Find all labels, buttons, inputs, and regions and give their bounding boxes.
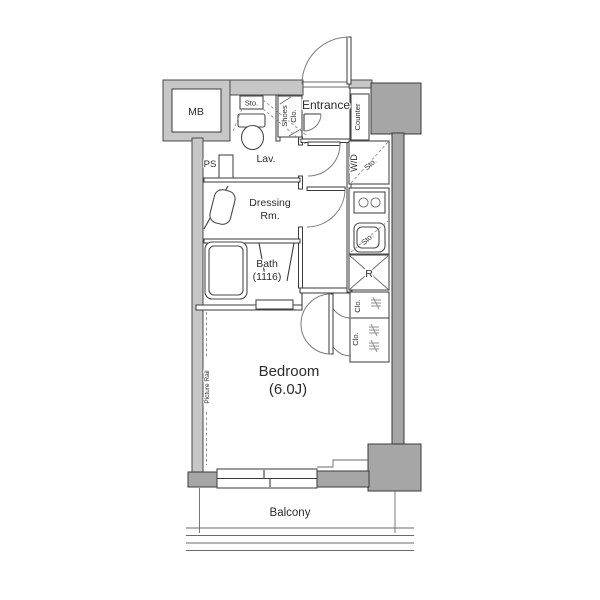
wall-hall-seg3 <box>299 227 303 288</box>
bathtub-inner <box>209 246 243 295</box>
dressing-door-swing-arc <box>307 189 345 227</box>
bath-door-line <box>287 243 294 281</box>
pillar-top-right <box>371 83 421 134</box>
wall-bottom-right-stub <box>317 471 369 487</box>
pipe-space-box <box>219 155 233 178</box>
lav-door-leaf <box>308 142 340 146</box>
front-door-swing-arc <box>302 37 349 84</box>
bath-label-2: (1116) <box>253 271 282 283</box>
balcony-label: Balcony <box>270 507 311 519</box>
bath-step <box>256 300 293 309</box>
meter-box-label: MB <box>188 106 204 118</box>
bedroom-label-2: (6.0J) <box>269 381 307 398</box>
wall-lav-dressing <box>204 178 300 182</box>
bedroom-label-1: Bedroom <box>259 363 320 380</box>
floor-plan-page: MB Sto. Shoes Clo. Entrance Counter PS L… <box>0 0 600 600</box>
bath-label-1: Bath <box>256 258 278 270</box>
shoes-closet-label-2: Clo. <box>289 109 298 123</box>
entrance-label: Entrance <box>302 98 350 112</box>
bedroom-door-swing-arc <box>301 294 331 354</box>
wall-hall-bedroom <box>300 288 352 293</box>
picture-rail-label: Picture Rail <box>204 370 211 404</box>
lav-door-swing-arc <box>308 144 340 176</box>
shoes-door-swing-arc <box>304 114 321 131</box>
toilet-storage-label: Sto. <box>245 99 259 108</box>
dressing-room-label-2: Rm. <box>260 210 279 222</box>
wall-top-left <box>230 80 303 95</box>
pillar-bottom-right <box>368 444 421 491</box>
lavatory-label: Lav. <box>256 153 275 165</box>
bedroom-door-leaf <box>329 294 333 354</box>
washer-dryer-label: W/D <box>349 154 359 172</box>
wall-right <box>392 133 404 445</box>
wall-top-right <box>349 80 372 88</box>
closet-upper-label: Clo. <box>353 299 362 313</box>
pipe-space-label: PS <box>204 159 217 170</box>
closet-lower-label: Clo. <box>351 332 360 346</box>
front-door-leaf <box>347 37 351 84</box>
toilet-bowl-icon <box>242 126 264 150</box>
washbasin-icon <box>208 188 237 226</box>
counter-label: Counter <box>353 103 362 130</box>
dressing-door-leaf <box>307 187 345 191</box>
floor-plan-drawing: MB Sto. Shoes Clo. Entrance Counter PS L… <box>0 0 600 600</box>
wall-bottom-left-stub <box>188 472 218 487</box>
shoes-closet-label-1: Shoes <box>280 105 289 127</box>
refrigerator-label: R <box>365 268 373 280</box>
wall-step-line <box>317 460 368 467</box>
dressing-room-label-1: Dressing <box>249 197 291 209</box>
balcony-railing <box>186 528 414 551</box>
